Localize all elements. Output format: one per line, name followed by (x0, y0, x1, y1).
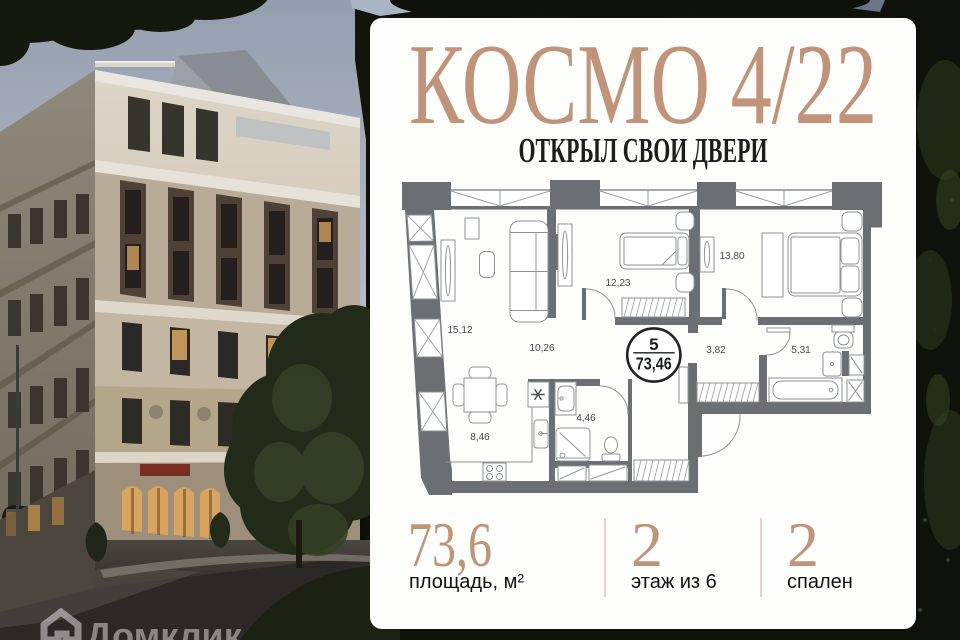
svg-text:8,46: 8,46 (470, 432, 490, 443)
svg-text:3,82: 3,82 (706, 345, 726, 356)
svg-text:12,23: 12,23 (605, 278, 630, 289)
svg-text:спален: спален (787, 571, 853, 593)
svg-text:13,80: 13,80 (719, 251, 744, 262)
svg-text:5: 5 (649, 335, 658, 354)
svg-text:15,12: 15,12 (447, 325, 472, 336)
svg-text:ОТКРЫЛ СВОИ ДВЕРИ: ОТКРЫЛ СВОИ ДВЕРИ (519, 131, 768, 170)
svg-text:этаж из 6: этаж из 6 (631, 571, 717, 593)
svg-text:5,31: 5,31 (791, 345, 811, 356)
svg-text:73,46: 73,46 (636, 354, 672, 374)
svg-text:площадь, м²: площадь, м² (409, 571, 524, 593)
svg-text:КОСМО 4/22: КОСМО 4/22 (409, 21, 877, 149)
svg-text:4,46: 4,46 (576, 413, 596, 424)
svg-text:Домклик: Домклик (86, 615, 243, 640)
svg-text:10,26: 10,26 (529, 343, 554, 354)
